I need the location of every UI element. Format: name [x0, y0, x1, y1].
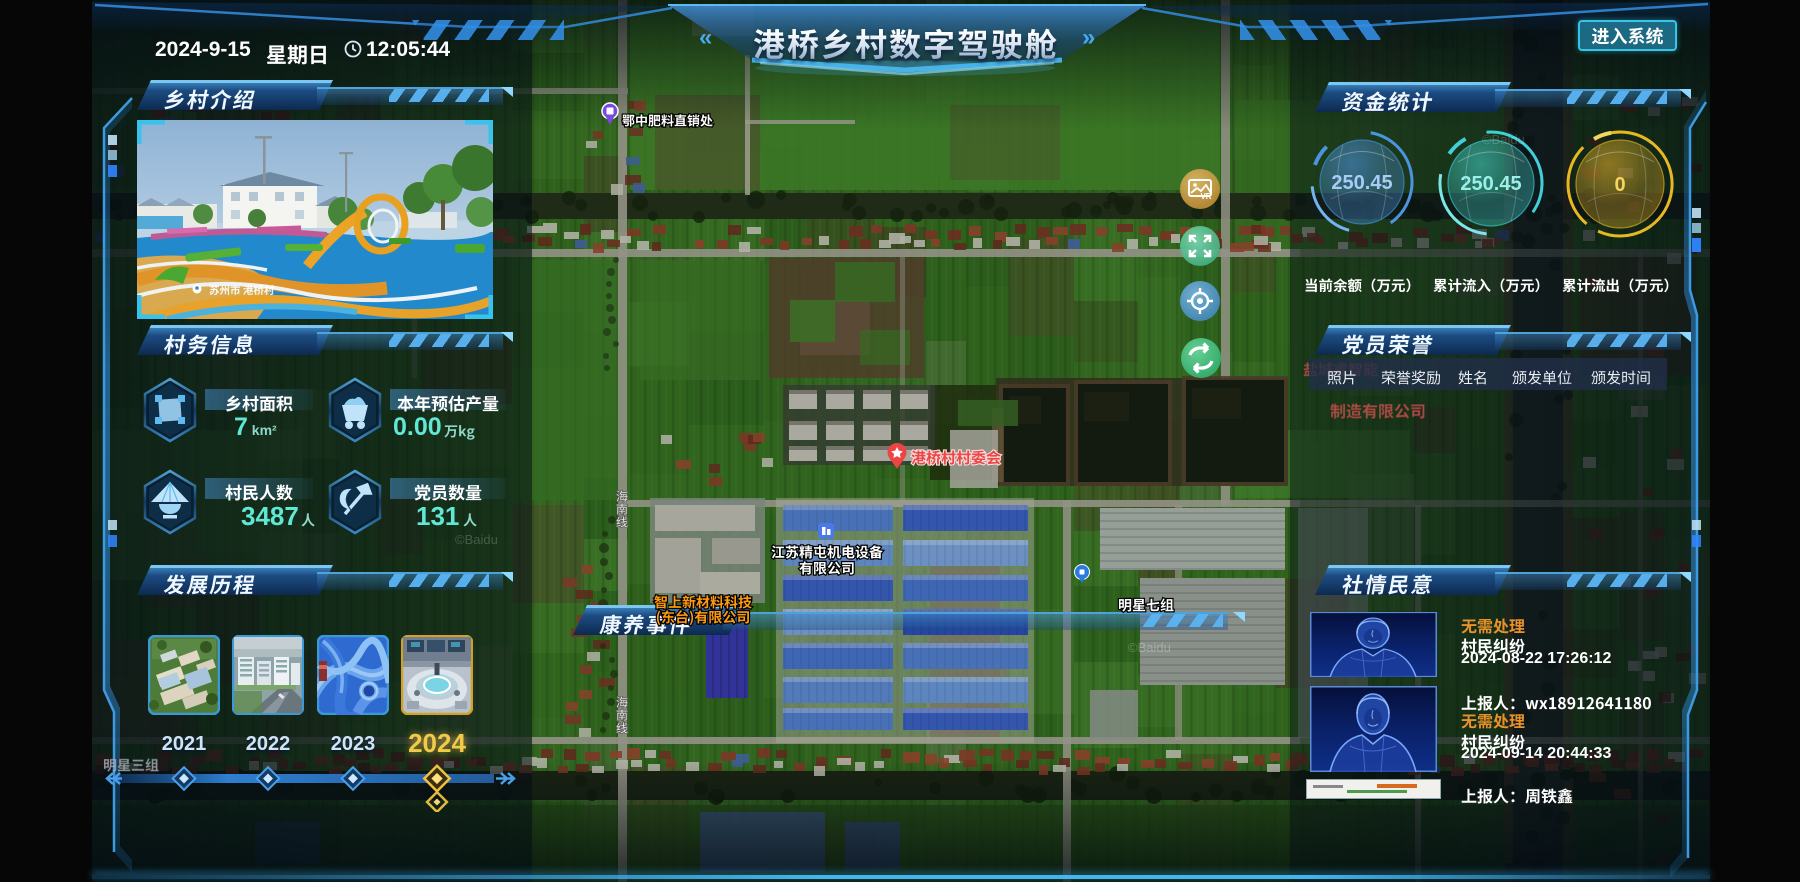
svg-text:0: 0 — [1614, 174, 1625, 196]
svg-text:VR: VR — [1200, 192, 1211, 201]
svg-text:250.45: 250.45 — [1460, 173, 1521, 195]
svg-text:250.45: 250.45 — [1331, 172, 1392, 194]
